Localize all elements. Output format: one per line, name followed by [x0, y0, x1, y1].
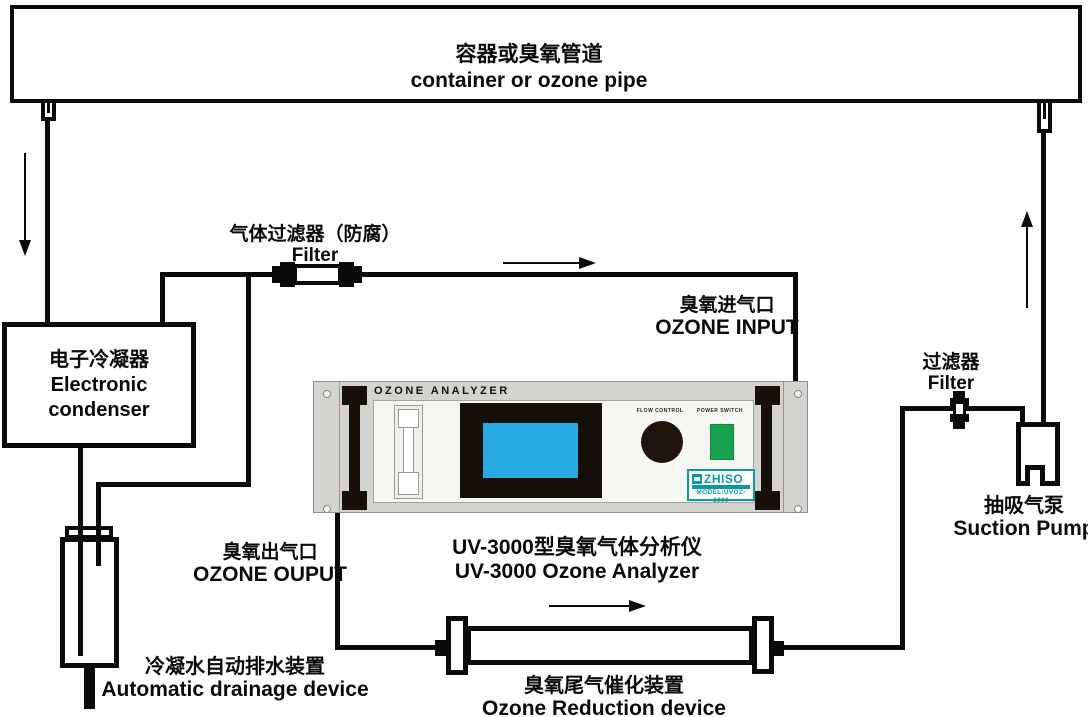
reduction-nipple-right	[772, 641, 784, 656]
drainage-device-label: 冷凝水自动排水装置 Automatic drainage device	[101, 656, 368, 702]
pipe-branch-horizontal	[96, 482, 251, 487]
screw-hole-icon	[794, 390, 802, 398]
container-pipe-label-zh: 容器或臭氧管道	[411, 42, 648, 68]
condenser-box: 电子冷凝器 Electronic condenser	[2, 322, 196, 448]
pipe-tee-drop	[246, 272, 251, 485]
condenser-label-zh: 电子冷凝器	[49, 348, 149, 373]
diagram-canvas: 容器或臭氧管道 container or ozone pipe 电子冷凝器	[0, 0, 1088, 717]
pipe-pump-to-container	[1041, 130, 1046, 424]
pipe-output-to-reduction	[335, 645, 446, 650]
brand-name: ZHISO	[704, 473, 743, 485]
container-pipe-box: 容器或臭氧管道 container or ozone pipe	[10, 5, 1082, 103]
rack-ear-divider-left	[339, 382, 340, 512]
suction-pump-label: 抽吸气泵 Suction Pump	[953, 495, 1088, 541]
flow-control-knob[interactable]	[641, 421, 683, 463]
power-switch-label: POWER SWITCH	[685, 408, 755, 414]
drainage-inner-tube-main	[78, 530, 83, 656]
rack-ear-divider-right	[783, 382, 784, 512]
brand-plate: ZHISO MODEL:UVOZ-3000	[687, 469, 755, 501]
ozone-analyzer-device: OZONE ANALYZER FLOW CONTROL POWER SWITCH…	[313, 381, 808, 513]
condenser-label-en: Electronic condenser	[7, 373, 191, 423]
pipe-reduction-to-riser	[783, 645, 905, 650]
reduction-device-label: 臭氧尾气催化装置 Ozone Reduction device	[482, 675, 726, 717]
zhiso-logo-icon	[692, 474, 702, 484]
ozone-input-label: 臭氧进气口 OZONE INPUT	[655, 295, 799, 340]
gas-filter-label: 气体过滤器（防腐） Filter	[229, 224, 400, 267]
drainage-body	[60, 537, 119, 668]
pipe-sample-line	[160, 272, 798, 277]
right-filter-label: 过滤器 Filter	[922, 352, 979, 395]
pipe-container-to-condenser	[45, 119, 50, 322]
container-pipe-label-en: container or ozone pipe	[411, 68, 648, 94]
drainage-outlet	[84, 666, 95, 709]
pipe-condenser-outlet-riser	[160, 272, 165, 322]
analyzer-caption: UV-3000型臭氧气体分析仪 UV-3000 Ozone Analyzer	[452, 536, 702, 583]
screw-hole-icon	[323, 390, 331, 398]
screw-hole-icon	[794, 505, 802, 513]
model-number: MODEL:UVOZ-3000	[689, 489, 753, 505]
pipe-stub-right-core	[1043, 103, 1046, 119]
ozone-output-label: 臭氧出气口 OZONE OUPUT	[193, 542, 347, 587]
pump-notch	[1025, 465, 1045, 486]
analyzer-title: OZONE ANALYZER	[374, 385, 510, 397]
power-switch[interactable]	[710, 424, 734, 460]
pipe-stub-left-core	[47, 103, 50, 113]
drainage-inner-tube-branch	[96, 530, 101, 566]
reduction-flange-right	[752, 616, 774, 674]
display-screen	[483, 423, 578, 478]
screw-hole-icon	[323, 505, 331, 513]
reduction-body	[466, 626, 754, 665]
pipe-right-riser	[900, 406, 905, 650]
reduction-flange-left	[446, 616, 468, 675]
